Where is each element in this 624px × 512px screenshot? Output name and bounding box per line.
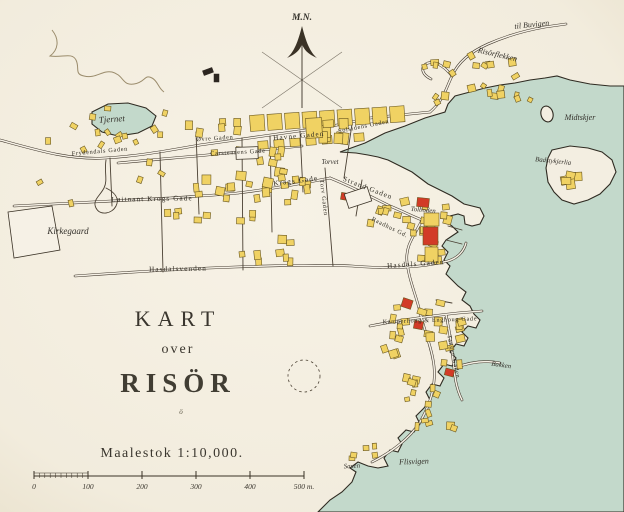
building	[441, 359, 447, 366]
building	[421, 418, 428, 423]
building	[350, 452, 357, 458]
building	[173, 212, 179, 219]
building	[223, 195, 230, 202]
building	[286, 240, 294, 246]
building	[497, 90, 505, 98]
building	[433, 62, 438, 69]
scale-tick-label: 100	[82, 482, 94, 491]
building	[467, 84, 476, 93]
building	[254, 194, 261, 202]
map-label-midtskjer: Midtskjer	[564, 113, 597, 122]
building	[164, 209, 171, 216]
building	[246, 181, 253, 187]
building	[193, 183, 199, 192]
building	[354, 133, 365, 142]
building	[400, 197, 410, 206]
map-label-tjernet: Tjernet	[98, 113, 125, 125]
building	[440, 212, 447, 219]
building	[423, 227, 438, 245]
building	[104, 106, 111, 111]
building	[443, 61, 451, 68]
map-label-kirkegaard: Kirkegaard	[46, 226, 89, 236]
building	[239, 251, 245, 257]
building	[410, 230, 416, 236]
map-label-m-n-: M.N.	[291, 13, 312, 23]
building	[203, 212, 211, 219]
building	[249, 115, 265, 132]
building	[95, 129, 100, 136]
building	[284, 112, 300, 129]
building	[249, 210, 255, 217]
building	[323, 120, 334, 128]
building	[236, 171, 247, 181]
building	[122, 133, 128, 139]
building	[407, 222, 415, 230]
map-page: KART over RISÖR ö Maalestok 1:10,000. 01…	[0, 0, 624, 512]
building	[202, 175, 211, 184]
building	[89, 113, 96, 120]
building	[284, 199, 290, 205]
building	[439, 326, 448, 335]
building	[372, 443, 377, 449]
scale-text: Maalestok 1:10,000.	[100, 446, 243, 461]
building	[194, 217, 202, 223]
map-title-kart: KART	[135, 306, 222, 331]
map-label-l-itnant-krogs-gade: Løitnant Krogs Gade	[111, 194, 193, 203]
building	[267, 113, 283, 130]
building	[185, 121, 192, 130]
building	[291, 190, 298, 200]
building	[487, 61, 495, 68]
scale-tick-label: 500 m.	[294, 482, 315, 491]
scale-tick-label: 0	[32, 482, 36, 491]
building	[254, 250, 261, 260]
building	[275, 154, 281, 160]
map-title-over: over	[162, 342, 195, 357]
building	[234, 126, 242, 136]
building	[473, 63, 480, 69]
building	[279, 168, 287, 174]
risor-map: KART over RISÖR ö Maalestok 1:10,000. 01…	[0, 0, 624, 512]
building	[234, 118, 241, 126]
building	[390, 331, 396, 339]
building	[424, 213, 439, 226]
building	[442, 204, 449, 210]
building	[438, 341, 448, 350]
building	[561, 177, 571, 184]
scale-tick-label: 400	[244, 482, 256, 491]
building	[403, 216, 411, 222]
building	[404, 397, 410, 402]
building	[422, 64, 428, 70]
scale-tick-label: 200	[136, 482, 148, 491]
building	[363, 445, 369, 450]
building	[158, 132, 163, 138]
scale-tick-label: 300	[189, 482, 202, 491]
map-label-hasdalsvenden: Hasdalsvenden	[149, 264, 207, 273]
building	[262, 177, 273, 189]
building	[283, 254, 289, 262]
building	[441, 92, 449, 101]
building	[227, 183, 235, 192]
building	[45, 138, 50, 145]
building	[415, 422, 419, 430]
map-label-torvet: Torvet	[321, 159, 339, 166]
building	[425, 401, 432, 407]
building	[146, 159, 152, 166]
building	[372, 452, 378, 458]
map-title-risor: RISÖR	[120, 368, 236, 398]
building	[394, 305, 401, 311]
building	[410, 389, 416, 396]
building	[430, 385, 435, 392]
building	[437, 249, 445, 256]
building	[278, 235, 287, 244]
building-special	[214, 74, 219, 82]
building	[262, 188, 270, 197]
building	[218, 124, 225, 132]
building	[487, 89, 492, 97]
building	[426, 333, 435, 342]
building	[236, 218, 244, 224]
map-label-flisvigen: Flisvigen	[398, 456, 429, 466]
map-label-saxen: Saxen	[344, 463, 361, 471]
building	[389, 106, 405, 123]
map-title-ornament: ö	[179, 408, 183, 416]
